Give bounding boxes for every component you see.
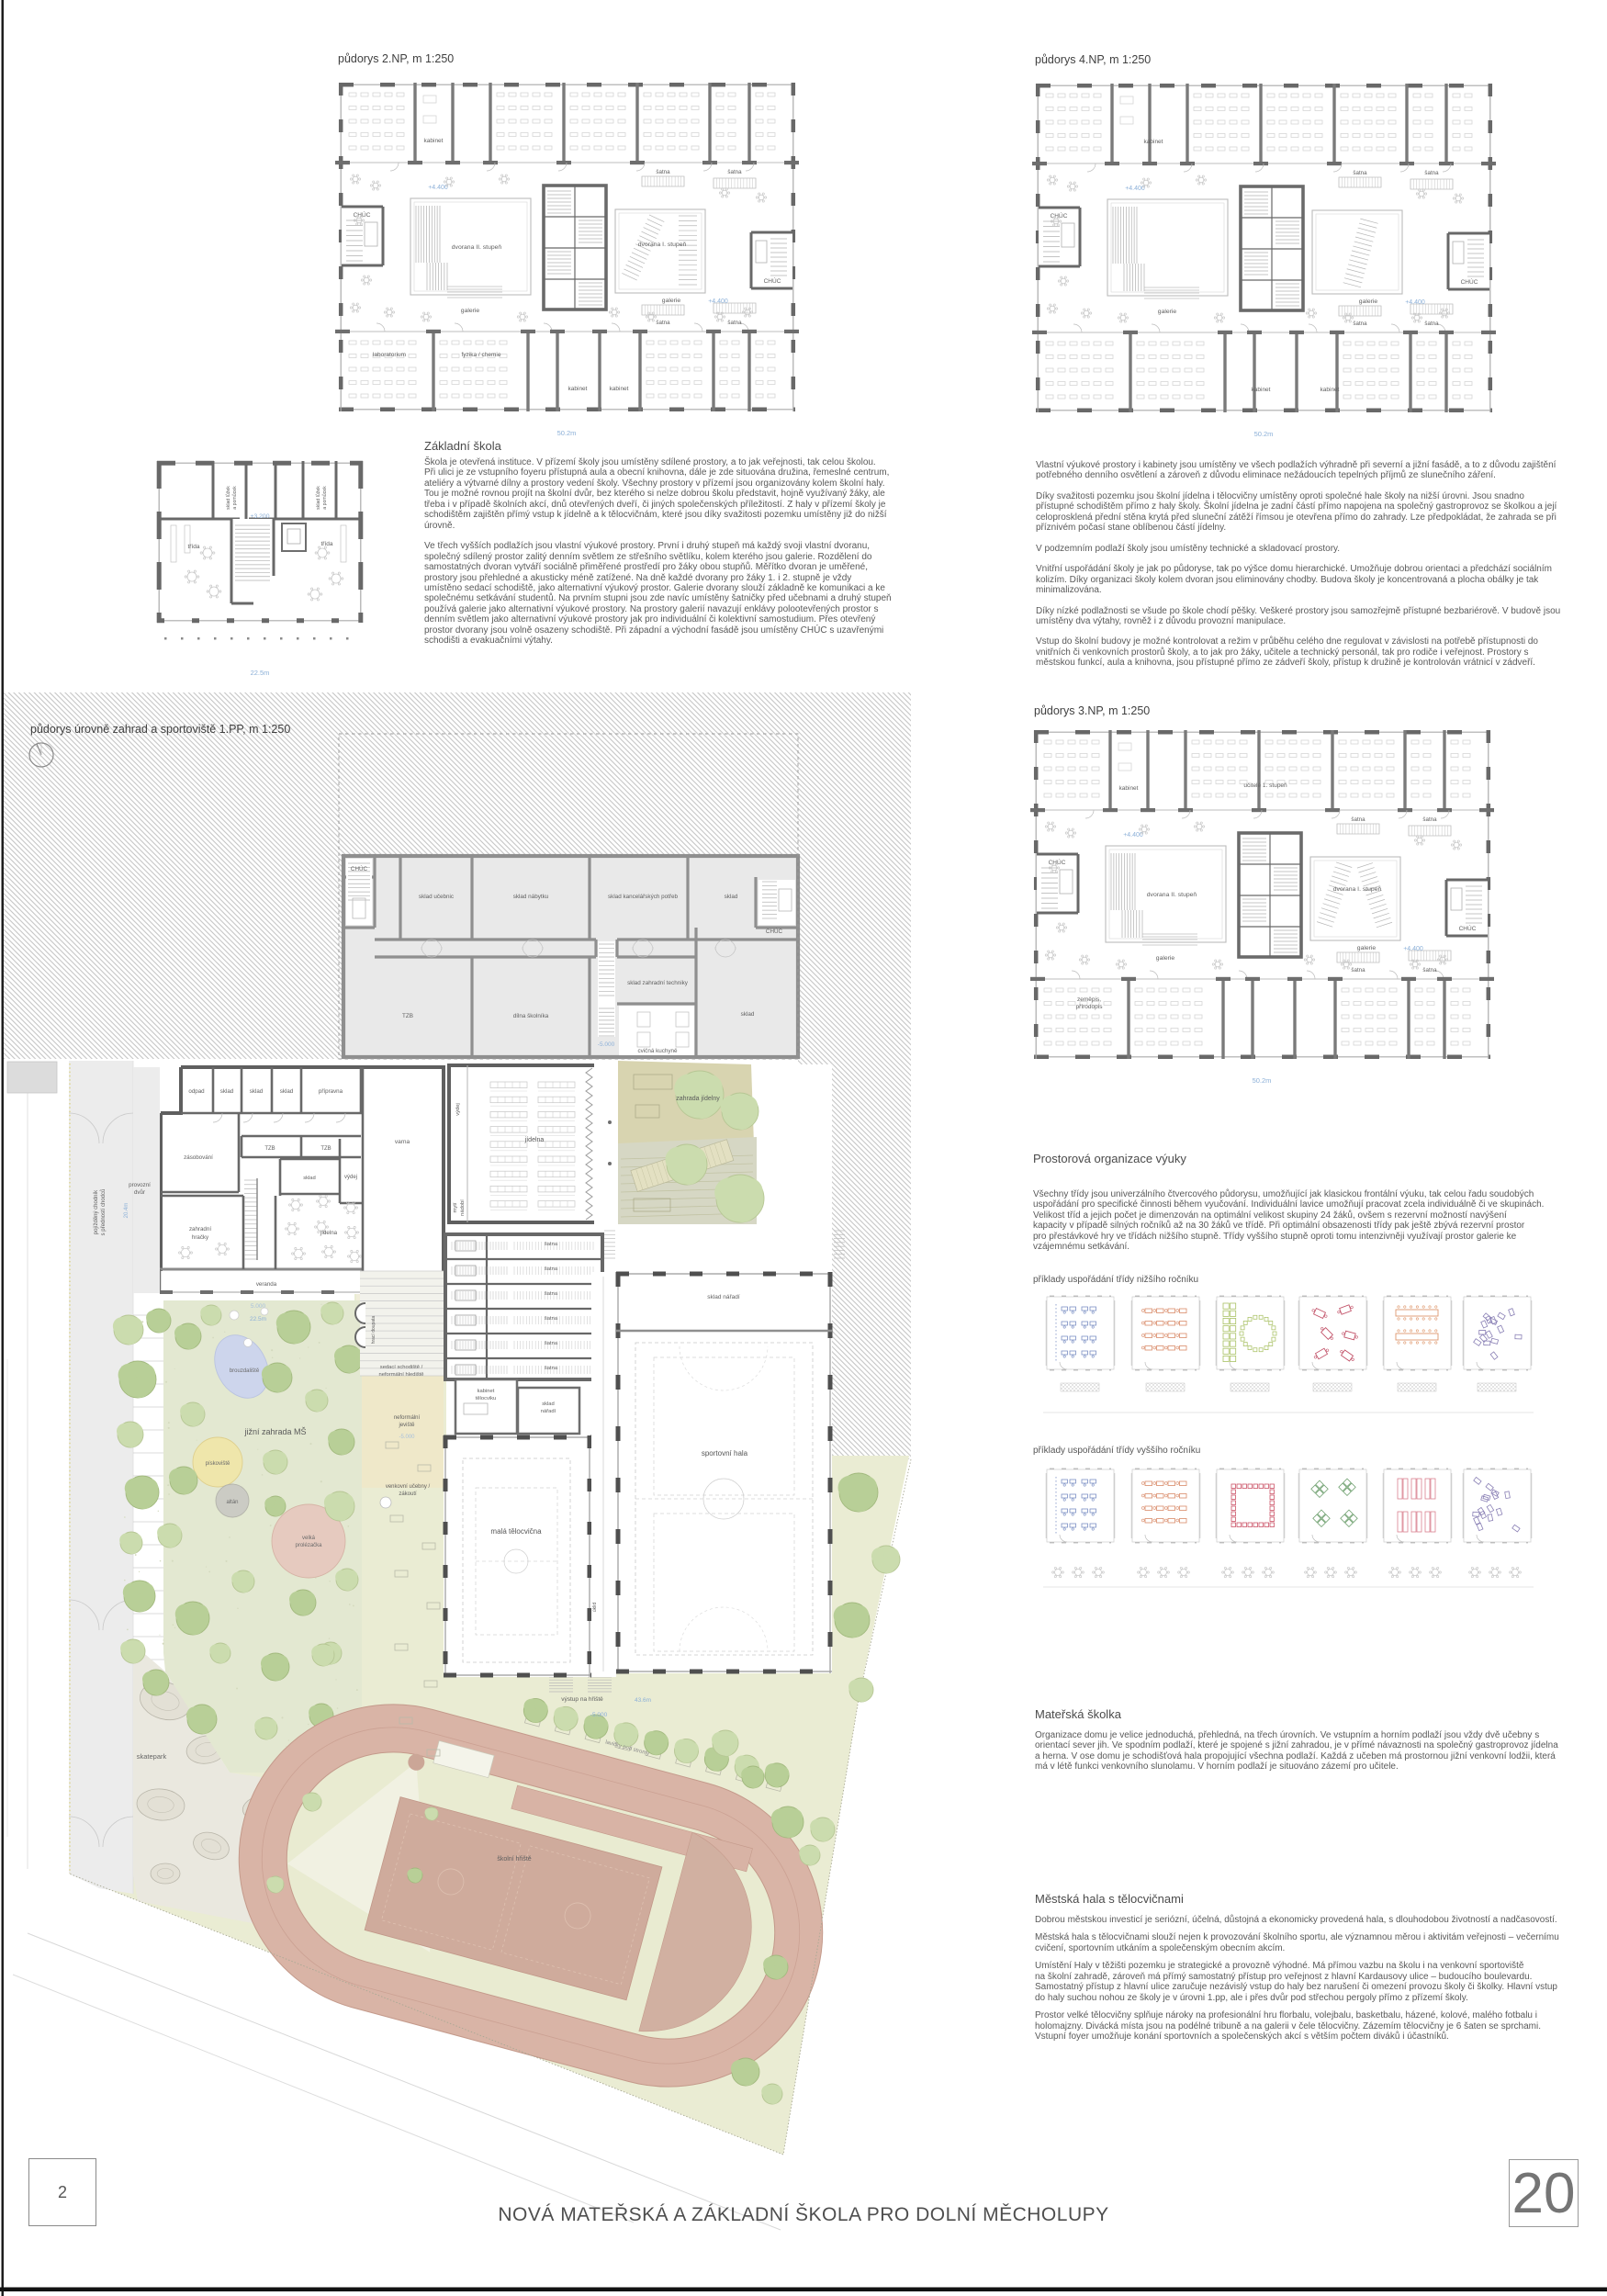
svg-text:výdej: výdej (455, 1103, 461, 1116)
svg-text:nářadí: nářadí (541, 1409, 556, 1414)
svg-text:sklad kancelářských potřeb: sklad kancelářských potřeb (608, 894, 678, 900)
svg-text:a pomůcek: a pomůcek (231, 486, 238, 510)
svg-text:šatna: šatna (656, 320, 670, 326)
svg-text:sklad: sklad (220, 1088, 234, 1095)
svg-text:sklad zahradní techniky: sklad zahradní techniky (627, 980, 689, 986)
svg-text:sklad nábytku: sklad nábytku (513, 894, 549, 900)
svg-text:CHÚC: CHÚC (1459, 924, 1477, 932)
svg-text:jídelna: jídelna (320, 1230, 338, 1236)
svg-text:šatna: šatna (656, 169, 670, 175)
svg-text:třída: třída (187, 544, 199, 550)
svg-text:CHÚC: CHÚC (1461, 277, 1478, 286)
svg-text:šatna: šatna (1353, 321, 1367, 327)
svg-text:jižní zahrada MŠ: jižní zahrada MŠ (243, 1427, 306, 1436)
svg-text:TZB: TZB (320, 1146, 331, 1152)
svg-text:-5.000: -5.000 (590, 1712, 608, 1718)
svg-text:CHÚC: CHÚC (764, 276, 781, 285)
svg-text:šatna: šatna (1351, 967, 1365, 974)
svg-text:altán: altán (226, 1500, 238, 1505)
svg-text:pískoviště: pískoviště (206, 1461, 230, 1467)
svg-text:kabinet: kabinet (568, 386, 588, 392)
svg-text:šatna: šatna (545, 1341, 558, 1346)
svg-text:šatna: šatna (1422, 816, 1437, 823)
svg-text:22.5m: 22.5m (251, 669, 270, 677)
svg-text:galerie: galerie (1156, 955, 1175, 962)
svg-text:CHÚC: CHÚC (766, 927, 783, 935)
svg-text:šatna: šatna (1353, 170, 1367, 176)
svg-text:dvorana II. stupeň: dvorana II. stupeň (1147, 892, 1197, 898)
svg-text:kabinet: kabinet (1119, 785, 1139, 792)
svg-text:šatna: šatna (545, 1316, 558, 1322)
svg-text:zeměpis,: zeměpis, (1077, 996, 1101, 1003)
svg-text:kabinet: kabinet (610, 386, 629, 392)
svg-text:43.6m: 43.6m (635, 1697, 651, 1704)
svg-text:sklad: sklad (280, 1088, 294, 1095)
svg-text:kabinet: kabinet (478, 1389, 495, 1394)
svg-text:20.4m: 20.4m (124, 1203, 129, 1219)
svg-text:sklad učebnic: sklad učebnic (419, 894, 454, 900)
svg-text:šatna: šatna (1351, 816, 1365, 823)
svg-text:sklad lůžek: sklad lůžek (225, 486, 231, 510)
svg-text:zahrada jídelny: zahrada jídelny (676, 1096, 720, 1102)
svg-text:dílna školníka: dílna školníka (513, 1013, 549, 1019)
svg-text:sklad: sklad (741, 1011, 755, 1018)
svg-text:prolézačka: prolézačka (295, 1543, 322, 1548)
svg-text:sedací schodiště /: sedací schodiště / (380, 1365, 423, 1370)
svg-text:sklad: sklad (542, 1401, 555, 1407)
svg-text:sklad: sklad (250, 1088, 264, 1095)
svg-text:šatna: šatna (545, 1366, 558, 1371)
svg-text:sklad: sklad (303, 1176, 316, 1181)
svg-text:-5.000: -5.000 (399, 1435, 415, 1440)
svg-text:úklid: úklid (592, 1603, 598, 1613)
svg-text:dvorana II. stupeň: dvorana II. stupeň (452, 244, 502, 251)
svg-text:galerie: galerie (1359, 298, 1378, 305)
svg-text:galerie: galerie (662, 298, 681, 304)
svg-text:pojížděný chodník: pojížděný chodník (94, 1189, 99, 1234)
svg-text:kabinet: kabinet (1320, 387, 1340, 393)
svg-text:-5.000: -5.000 (598, 1041, 615, 1048)
svg-text:hračky: hračky (192, 1234, 209, 1241)
svg-text:sklad: sklad (725, 894, 738, 900)
svg-text:+4.400: +4.400 (1403, 946, 1423, 952)
svg-text:učitelé 1. stupeň: učitelé 1. stupeň (1243, 782, 1287, 789)
svg-text:výstup na hřiště: výstup na hřiště (561, 1696, 603, 1703)
svg-text:sportovní hala: sportovní hala (702, 1449, 748, 1458)
svg-text:sklad lůžek: sklad lůžek (315, 486, 321, 510)
svg-text:50.2m: 50.2m (1254, 430, 1274, 438)
svg-text:fyzika / chemie: fyzika / chemie (462, 352, 501, 358)
svg-text:+4.400: +4.400 (1123, 832, 1143, 838)
svg-text:galerie: galerie (461, 308, 480, 314)
svg-text:kabinet: kabinet (1144, 139, 1163, 145)
svg-text:přírodopis: přírodopis (1076, 1004, 1104, 1010)
svg-text:50.2m: 50.2m (1253, 1076, 1272, 1085)
svg-text:galerie: galerie (1158, 309, 1177, 315)
svg-text:galerie: galerie (1357, 945, 1377, 951)
svg-text:22.5m: 22.5m (250, 1316, 266, 1322)
svg-text:šatna: šatna (545, 1291, 558, 1297)
svg-text:šatna: šatna (1424, 170, 1439, 176)
svg-text:výdej: výdej (344, 1175, 357, 1180)
svg-text:s předností chodců: s předností chodců (100, 1189, 107, 1236)
svg-text:hrací doupata: hrací doupata (371, 1315, 376, 1344)
svg-text:odpad: odpad (188, 1088, 205, 1095)
svg-text:neformální: neformální (394, 1415, 421, 1421)
svg-text:šatna: šatna (727, 169, 742, 175)
svg-text:kabinet: kabinet (424, 138, 444, 144)
svg-text:zahradní: zahradní (189, 1226, 211, 1232)
svg-text:mytí: mytí (453, 1202, 458, 1212)
svg-text:dvorana I. stupeň: dvorana I. stupeň (1333, 886, 1382, 893)
svg-text:dvorana I. stupeň: dvorana I. stupeň (638, 242, 687, 248)
svg-text:50.2m: 50.2m (557, 429, 577, 437)
svg-text:dvůr: dvůr (134, 1189, 145, 1196)
svg-text:venkovní učebny /: venkovní učebny / (386, 1484, 431, 1490)
svg-text:a pomůcek: a pomůcek (321, 486, 328, 510)
svg-text:+4.400: +4.400 (428, 185, 448, 191)
svg-text:velká: velká (302, 1536, 316, 1541)
svg-text:provozní: provozní (129, 1182, 151, 1188)
svg-text:cvičná kuchyně: cvičná kuchyně (637, 1048, 678, 1054)
svg-text:+4.400: +4.400 (1405, 299, 1425, 306)
svg-text:+3.200: +3.200 (251, 513, 270, 520)
svg-text:zákoutí: zákoutí (399, 1491, 417, 1497)
svg-text:+4.400: +4.400 (1125, 186, 1145, 192)
svg-text:třída: třída (320, 541, 332, 547)
svg-text:CHÚC: CHÚC (351, 864, 368, 872)
svg-text:+4.400: +4.400 (708, 298, 728, 305)
svg-text:šatna: šatna (1424, 321, 1439, 327)
svg-text:varna: varna (395, 1139, 410, 1145)
svg-text:šatna: šatna (1422, 967, 1437, 974)
svg-text:TZB: TZB (264, 1146, 275, 1152)
svg-text:skatepark: skatepark (137, 1752, 167, 1761)
svg-text:zásobování: zásobování (184, 1154, 213, 1161)
svg-text:šatna: šatna (545, 1266, 558, 1272)
svg-text:TZB: TZB (402, 1013, 413, 1019)
svg-text:veranda: veranda (256, 1281, 277, 1288)
svg-text:laboratorium: laboratorium (373, 352, 406, 358)
svg-text:neformální hlediště: neformální hlediště (379, 1372, 424, 1378)
svg-text:kabinet: kabinet (1252, 387, 1271, 393)
svg-text:přípravna: přípravna (319, 1088, 343, 1095)
svg-text:sklad nářadí: sklad nářadí (707, 1294, 740, 1300)
svg-text:brouzdaliště: brouzdaliště (230, 1368, 260, 1374)
svg-text:malá tělocvična: malá tělocvična (490, 1527, 542, 1536)
svg-text:nádobí: nádobí (460, 1199, 466, 1216)
svg-text:jeviště: jeviště (398, 1423, 415, 1428)
svg-text:šatna: šatna (727, 320, 742, 326)
svg-text:školní hřiště: školní hřiště (497, 1856, 531, 1863)
svg-text:šatna: šatna (545, 1242, 558, 1247)
svg-text:jídelna: jídelna (524, 1137, 545, 1143)
svg-text:tělocviku: tělocviku (476, 1396, 497, 1401)
